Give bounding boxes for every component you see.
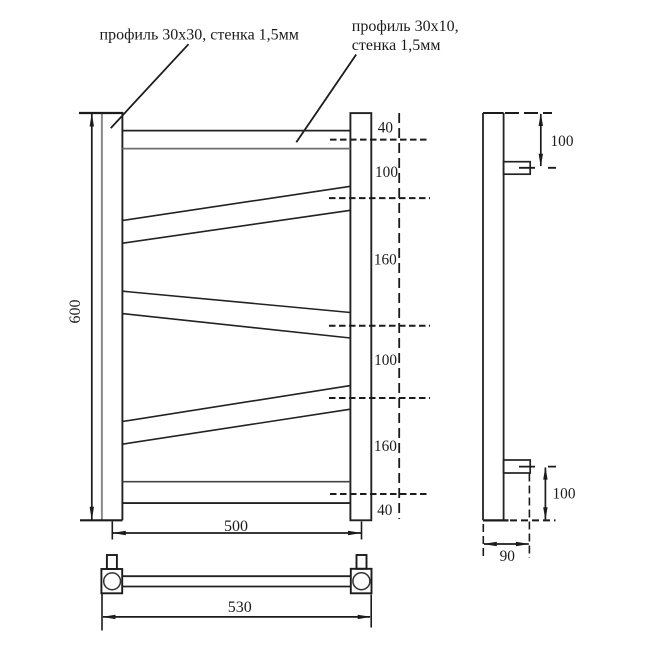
svg-text:600: 600 [67,300,84,324]
svg-text:530: 530 [228,599,252,616]
svg-text:100: 100 [551,133,574,150]
svg-text:100: 100 [375,164,398,181]
svg-text:40: 40 [378,120,394,137]
svg-text:профиль 30х30, стенка 1,5мм: профиль 30х30, стенка 1,5мм [100,27,299,44]
svg-text:100: 100 [553,486,576,503]
svg-text:профиль 30х10,: профиль 30х10, [352,18,459,35]
svg-text:стенка 1,5мм: стенка 1,5мм [352,37,441,54]
svg-text:500: 500 [224,518,248,535]
svg-text:160: 160 [374,252,397,269]
svg-text:160: 160 [374,438,397,455]
svg-text:100: 100 [374,352,397,369]
svg-text:40: 40 [377,502,393,519]
svg-text:90: 90 [500,548,516,565]
